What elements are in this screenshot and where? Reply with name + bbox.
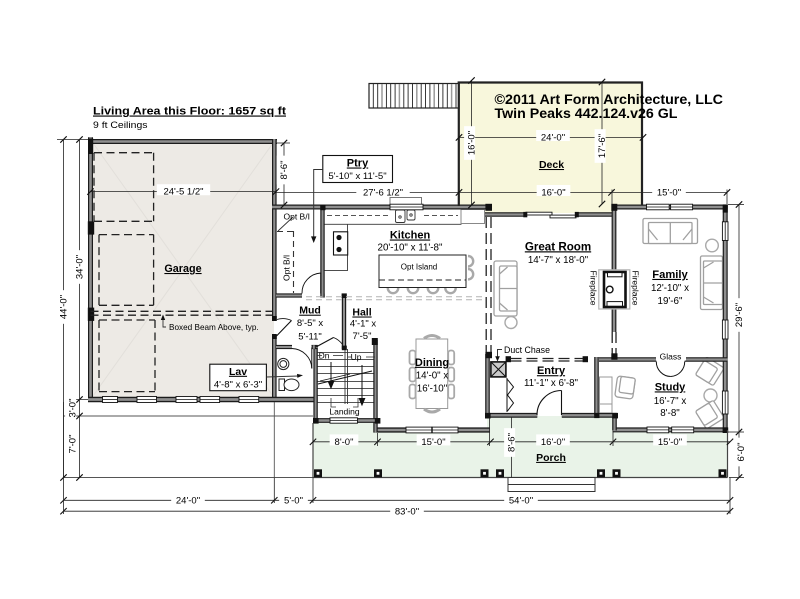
- svg-text:Study: Study: [655, 381, 686, 393]
- svg-text:Hall: Hall: [352, 307, 371, 319]
- svg-text:5'-10" x 11'-5": 5'-10" x 11'-5": [328, 171, 386, 182]
- svg-text:8'-8": 8'-8": [660, 408, 680, 419]
- svg-text:Landing: Landing: [329, 407, 360, 417]
- svg-text:Up: Up: [351, 352, 362, 362]
- svg-text:9 ft Ceilings: 9 ft Ceilings: [93, 120, 148, 131]
- svg-text:17'-6": 17'-6": [597, 134, 608, 158]
- svg-text:5'-0": 5'-0": [284, 495, 303, 506]
- svg-text:6'-0": 6'-0": [736, 443, 747, 462]
- svg-text:Entry: Entry: [537, 365, 566, 377]
- svg-text:19'-6": 19'-6": [658, 296, 683, 307]
- svg-text:8'-6": 8'-6": [279, 161, 290, 180]
- svg-text:29'-6": 29'-6": [734, 303, 745, 327]
- svg-text:54'-0": 54'-0": [509, 495, 533, 506]
- svg-text:7'-0": 7'-0": [68, 435, 79, 454]
- svg-text:16'-7" x: 16'-7" x: [654, 396, 687, 407]
- svg-text:24'-5 1/2": 24'-5 1/2": [163, 187, 203, 198]
- svg-text:16'-10": 16'-10": [417, 384, 448, 395]
- svg-text:Deck: Deck: [539, 159, 564, 171]
- svg-text:16'-0": 16'-0": [467, 131, 478, 155]
- svg-text:Opt B/l: Opt B/l: [282, 255, 292, 281]
- svg-text:Twin Peaks 442.124.v26 GL: Twin Peaks 442.124.v26 GL: [495, 106, 678, 121]
- svg-text:Family: Family: [652, 269, 688, 281]
- svg-text:©2011 Art Form Architecture, L: ©2011 Art Form Architecture, LLC: [495, 92, 724, 107]
- svg-text:Garage: Garage: [164, 263, 201, 275]
- svg-text:Great Room: Great Room: [525, 240, 591, 253]
- svg-text:15'-0": 15'-0": [421, 437, 445, 448]
- svg-text:83'-0": 83'-0": [395, 506, 419, 517]
- svg-text:Opt B/I: Opt B/I: [284, 212, 310, 222]
- svg-text:16'-0": 16'-0": [541, 437, 565, 448]
- svg-text:Ptry: Ptry: [347, 158, 369, 170]
- svg-text:44'-0": 44'-0": [59, 295, 70, 319]
- svg-text:Opt Island: Opt Island: [401, 263, 437, 272]
- svg-text:Kitchen: Kitchen: [390, 230, 431, 242]
- svg-text:Mud: Mud: [299, 305, 321, 317]
- svg-text:4'-8" x 6'-3": 4'-8" x 6'-3": [214, 380, 262, 391]
- svg-text:Boxed Beam Above, typ.: Boxed Beam Above, typ.: [169, 323, 259, 332]
- svg-text:3'-0": 3'-0": [68, 399, 79, 418]
- svg-text:Living Area this Floor: 1657 s: Living Area this Floor: 1657 sq ft: [93, 106, 286, 118]
- svg-text:Dining: Dining: [415, 357, 449, 369]
- svg-text:7'-5": 7'-5": [353, 331, 372, 342]
- svg-text:12'-10" x: 12'-10" x: [651, 283, 689, 294]
- svg-text:27'-6 1/2": 27'-6 1/2": [363, 188, 403, 199]
- svg-text:Glass: Glass: [660, 352, 682, 362]
- svg-text:Porch: Porch: [536, 452, 566, 464]
- svg-text:24'-0": 24'-0": [176, 495, 200, 506]
- svg-text:16'-0": 16'-0": [541, 188, 565, 199]
- svg-text:15'-0": 15'-0": [657, 188, 681, 199]
- svg-text:20'-10" x 11'-8": 20'-10" x 11'-8": [378, 243, 443, 254]
- svg-text:8'-0": 8'-0": [335, 437, 354, 448]
- svg-text:11'-1" x 6'-8": 11'-1" x 6'-8": [524, 378, 579, 389]
- svg-text:24'-0": 24'-0": [541, 133, 565, 144]
- svg-text:14'-0" x: 14'-0" x: [416, 370, 449, 381]
- svg-text:34'-0": 34'-0": [75, 255, 86, 279]
- svg-text:4'-1" x: 4'-1" x: [350, 319, 377, 330]
- svg-text:Lav: Lav: [229, 366, 247, 378]
- svg-text:15'-0": 15'-0": [658, 437, 682, 448]
- svg-text:5'-11": 5'-11": [298, 332, 322, 343]
- svg-text:Duct Chase: Duct Chase: [504, 345, 550, 355]
- svg-text:8'-6": 8'-6": [507, 433, 518, 452]
- svg-text:Fireplace: Fireplace: [631, 271, 641, 306]
- svg-text:14'-7" x 18'-0": 14'-7" x 18'-0": [528, 255, 589, 266]
- svg-text:Fireplace: Fireplace: [589, 271, 599, 306]
- svg-text:8'-5" x: 8'-5" x: [297, 318, 324, 329]
